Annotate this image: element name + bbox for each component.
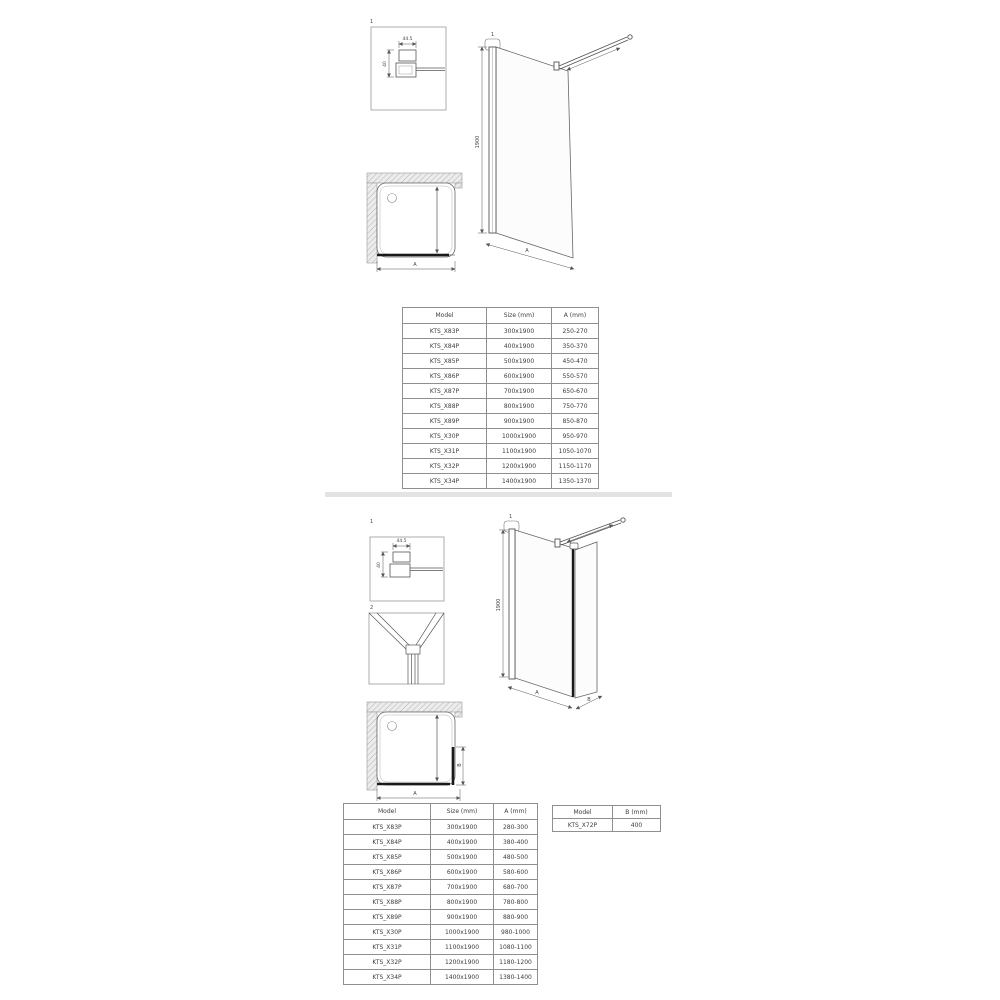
table-row: KTS_X31P1100x19001050-1070 <box>403 444 599 459</box>
callout-label: 1 <box>491 32 494 38</box>
wall-profile <box>509 529 515 679</box>
table-cell: KTS_X34P <box>344 970 431 985</box>
table-cell: 500x1900 <box>487 354 552 369</box>
table-cell: 300x1900 <box>487 324 552 339</box>
table-cell: 1400x1900 <box>487 474 552 489</box>
table-row: KTS_X30P1000x1900950-970 <box>403 429 599 444</box>
table-cell: 250-270 <box>552 324 599 339</box>
table-cell: 500x1900 <box>431 850 494 865</box>
callout-label: 1 <box>509 514 512 520</box>
table-cell: 1080-1100 <box>494 940 538 955</box>
table-cell: 550-570 <box>552 369 599 384</box>
corner-connector <box>570 543 578 549</box>
table-row: KTS_X83P300x1900250-270 <box>403 324 599 339</box>
table-row: KTS_X88P800x1900780-800 <box>344 895 538 910</box>
perspective-view-drawing-bottom: 1 1900 A B <box>492 510 660 755</box>
table-cell: KTS_X83P <box>403 324 487 339</box>
table-cell: 800x1900 <box>487 399 552 414</box>
table-cell: 780-800 <box>494 895 538 910</box>
table-row: KTS_X85P500x1900450-470 <box>403 354 599 369</box>
table-row: KTS_X34P1400x19001380-1400 <box>344 970 538 985</box>
detail-drawing-2-bottom: 2 <box>366 601 450 691</box>
dim-a: A <box>413 791 417 797</box>
table-cell: 450-470 <box>552 354 599 369</box>
table-cell: 380-400 <box>494 835 538 850</box>
table-cell: KTS_X72P <box>553 819 613 832</box>
table-cell: KTS_X88P <box>344 895 431 910</box>
section-divider <box>325 492 672 497</box>
table-row: KTS_X83P300x1900280-300 <box>344 820 538 835</box>
table-row: KTS_X30P1000x1900980-1000 <box>344 925 538 940</box>
table-row: KTS_X31P1100x19001080-1100 <box>344 940 538 955</box>
table-cell: 480-500 <box>494 850 538 865</box>
table-cell: 280-300 <box>494 820 538 835</box>
dim-40: 40 <box>376 562 382 568</box>
table-cell: KTS_X87P <box>344 880 431 895</box>
table-cell: 650-670 <box>552 384 599 399</box>
table-row: KTS_X86P600x1900580-600 <box>344 865 538 880</box>
detail-label: 1 <box>370 19 373 25</box>
column-header: B (mm) <box>613 806 661 819</box>
column-header: Model <box>403 308 487 324</box>
detail-drawing-1-bottom: 1 44.5 40 <box>366 514 452 610</box>
table-cell: KTS_X31P <box>344 940 431 955</box>
table-cell: KTS_X87P <box>403 384 487 399</box>
dim-1900: 1900 <box>496 599 502 612</box>
side-panel-table: Model B (mm) KTS_X72P400 <box>552 805 661 832</box>
table-cell: KTS_X85P <box>403 354 487 369</box>
support-arm <box>555 518 625 547</box>
table-cell: 400x1900 <box>487 339 552 354</box>
table-cell: KTS_X88P <box>403 399 487 414</box>
column-header: Model <box>344 804 431 820</box>
table-cell: 1000x1900 <box>487 429 552 444</box>
dim-1900: 1900 <box>475 136 481 149</box>
column-header: Model <box>553 806 613 819</box>
table-cell: 1350-1370 <box>552 474 599 489</box>
shower-tray <box>377 712 455 785</box>
column-header: A (mm) <box>552 308 599 324</box>
table-row: KTS_X34P1400x19001350-1370 <box>403 474 599 489</box>
dim-40: 40 <box>382 61 388 67</box>
width-dimension <box>377 789 460 801</box>
table-row: KTS_X84P400x1900350-370 <box>403 339 599 354</box>
column-header: A (mm) <box>494 804 538 820</box>
support-arm <box>554 35 632 70</box>
dim-445: 44.5 <box>402 36 412 42</box>
table-row: KTS_X87P700x1900680-700 <box>344 880 538 895</box>
drain <box>388 194 397 203</box>
side-return-panel <box>575 542 597 698</box>
plan-view-drawing-bottom: B A <box>362 693 474 805</box>
table-cell: KTS_X30P <box>403 429 487 444</box>
table-cell: 680-700 <box>494 880 538 895</box>
dim-b: B <box>587 697 591 703</box>
table-cell: KTS_X34P <box>403 474 487 489</box>
drain <box>388 722 397 731</box>
detail-drawing-1-top: 1 44.5 40 <box>366 14 452 118</box>
table-cell: 1050-1070 <box>552 444 599 459</box>
table-cell: KTS_X86P <box>344 865 431 880</box>
table-cell: 350-370 <box>552 339 599 354</box>
glass-panel <box>509 529 578 697</box>
table-row: KTS_X72P400 <box>553 819 661 832</box>
table-cell: KTS_X84P <box>344 835 431 850</box>
table-cell: KTS_X31P <box>403 444 487 459</box>
table-cell: 1200x1900 <box>431 955 494 970</box>
dim-a: A <box>535 690 539 696</box>
table-row: KTS_X87P700x1900650-670 <box>403 384 599 399</box>
table-cell: 600x1900 <box>487 369 552 384</box>
table-cell: 300x1900 <box>431 820 494 835</box>
table-header-row: Model B (mm) <box>553 806 661 819</box>
table-cell: 1000x1900 <box>431 925 494 940</box>
table-row: KTS_X85P500x1900480-500 <box>344 850 538 865</box>
table-row: KTS_X84P400x1900380-400 <box>344 835 538 850</box>
table-cell: 880-900 <box>494 910 538 925</box>
table-cell: KTS_X32P <box>403 459 487 474</box>
table-cell: 400 <box>613 819 661 832</box>
table-row: KTS_X32P1200x19001150-1170 <box>403 459 599 474</box>
table-cell: KTS_X32P <box>344 955 431 970</box>
table-cell: 580-600 <box>494 865 538 880</box>
table-cell: 900x1900 <box>487 414 552 429</box>
table-cell: 950-970 <box>552 429 599 444</box>
table-row: KTS_X88P800x1900750-770 <box>403 399 599 414</box>
front-view-drawing-top: 1 1900 A <box>470 28 650 278</box>
dim-a: A <box>413 262 417 268</box>
table-cell: 1400x1900 <box>431 970 494 985</box>
dim-a: A <box>525 248 529 254</box>
table-cell: KTS_X85P <box>344 850 431 865</box>
column-header: Size (mm) <box>487 308 552 324</box>
table-row: KTS_X89P900x1900850-870 <box>403 414 599 429</box>
table-cell: KTS_X83P <box>344 820 431 835</box>
dim-b: B <box>457 763 463 767</box>
table-row: KTS_X89P900x1900880-900 <box>344 910 538 925</box>
table-cell: 400x1900 <box>431 835 494 850</box>
column-header: Size (mm) <box>431 804 494 820</box>
table-cell: 1200x1900 <box>487 459 552 474</box>
table-cell: 850-870 <box>552 414 599 429</box>
table-cell: 800x1900 <box>431 895 494 910</box>
table-row: KTS_X32P1200x19001180-1200 <box>344 955 538 970</box>
detail-label: 1 <box>370 519 373 525</box>
table-cell: 1180-1200 <box>494 955 538 970</box>
table-header-row: Model Size (mm) A (mm) <box>403 308 599 324</box>
table-cell: KTS_X84P <box>403 339 487 354</box>
shower-tray <box>377 183 455 257</box>
detail-label: 2 <box>370 605 373 611</box>
table-cell: 980-1000 <box>494 925 538 940</box>
table-cell: KTS_X89P <box>403 414 487 429</box>
table-cell: 700x1900 <box>431 880 494 895</box>
table-cell: KTS_X30P <box>344 925 431 940</box>
table-cell: 600x1900 <box>431 865 494 880</box>
spec-sheet: 1 44.5 40 1 <box>0 0 1000 1000</box>
size-table-top: Model Size (mm) A (mm) KTS_X83P300x19002… <box>402 307 599 489</box>
plan-view-drawing-top: A <box>362 165 470 280</box>
table-cell: 1100x1900 <box>431 940 494 955</box>
glass-panel <box>489 47 573 258</box>
table-header-row: Model Size (mm) A (mm) <box>344 804 538 820</box>
table-cell: 750-770 <box>552 399 599 414</box>
table-row: KTS_X86P600x1900550-570 <box>403 369 599 384</box>
dim-445: 44.5 <box>396 538 406 544</box>
table-cell: 1380-1400 <box>494 970 538 985</box>
table-cell: 900x1900 <box>431 910 494 925</box>
table-cell: 1100x1900 <box>487 444 552 459</box>
table-cell: KTS_X89P <box>344 910 431 925</box>
table-cell: KTS_X86P <box>403 369 487 384</box>
table-cell: 700x1900 <box>487 384 552 399</box>
table-cell: 1150-1170 <box>552 459 599 474</box>
size-table-bottom: Model Size (mm) A (mm) KTS_X83P300x19002… <box>343 803 538 985</box>
